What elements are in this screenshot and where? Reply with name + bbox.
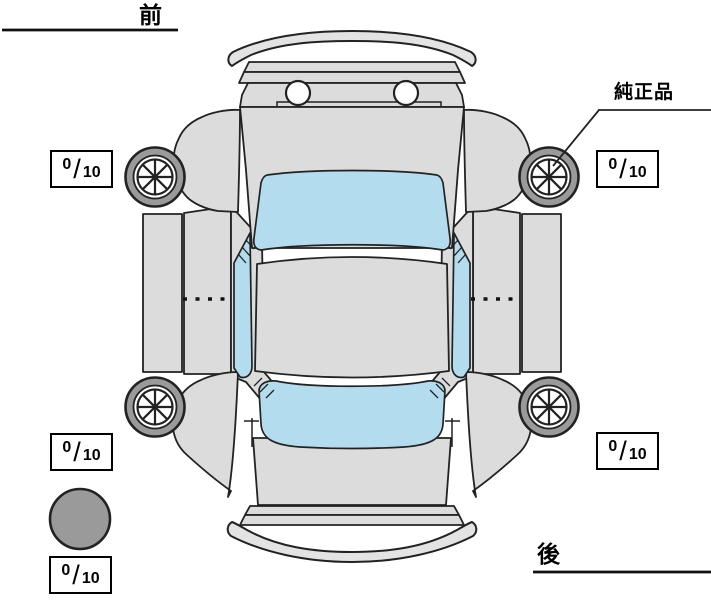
right-headlight-icon xyxy=(394,81,418,105)
rear-right-quarter-panel xyxy=(466,372,531,497)
wheel-front-right xyxy=(520,148,579,207)
tire-score-slash: / xyxy=(619,438,627,465)
tire-score-slash: / xyxy=(619,156,627,183)
front-cowl-upper-strip xyxy=(244,62,460,72)
tire-score-value: 0 xyxy=(608,156,617,174)
left-sill-panel xyxy=(143,214,182,372)
tire-score-value: 0 xyxy=(61,562,70,580)
front-cowl-lower-strip xyxy=(239,72,465,83)
rear-panel-upper-strip xyxy=(245,506,459,515)
front-bumper xyxy=(228,31,475,66)
left-door-panel xyxy=(184,206,231,374)
wheel-spokes xyxy=(533,391,565,423)
rear-left-quarter-panel xyxy=(173,372,238,497)
tire-score-max: 10 xyxy=(83,447,101,465)
tire-score-value: 0 xyxy=(62,439,71,457)
wheel-spokes xyxy=(139,391,171,423)
wheel-rear-right xyxy=(520,378,579,437)
tire-score-spare: 0 / 10 xyxy=(49,556,112,594)
tire-score-value: 0 xyxy=(62,156,71,174)
rear-bumper xyxy=(228,522,477,562)
wheel-spokes xyxy=(533,161,565,193)
tire-score-max: 10 xyxy=(629,446,647,464)
genuine-part-label: 純正品 xyxy=(614,83,674,102)
tire-score-slash: / xyxy=(73,439,81,466)
headlight-panel xyxy=(240,83,464,107)
tire-score-rear-left: 0 / 10 xyxy=(50,433,113,471)
windshield xyxy=(254,171,450,251)
tire-score-max: 10 xyxy=(83,164,101,182)
tire-score-slash: / xyxy=(72,562,80,589)
car-top-view xyxy=(0,0,711,600)
tire-score-max: 10 xyxy=(82,570,100,588)
genuine-leader-line xyxy=(553,110,599,166)
front-right-fender xyxy=(464,110,530,212)
rear-window xyxy=(259,381,445,449)
right-door-panel xyxy=(473,206,520,374)
front-label: 前 xyxy=(139,4,164,27)
roof-panel xyxy=(255,257,449,378)
wheel-rear-left xyxy=(126,378,185,437)
wheel-front-left xyxy=(126,148,185,207)
tire-score-slash: / xyxy=(73,156,81,183)
tire-score-value: 0 xyxy=(608,438,617,456)
wheel-spokes xyxy=(139,161,171,193)
front-left-fender xyxy=(174,110,240,212)
left-headlight-icon xyxy=(286,81,310,105)
tire-score-front-left: 0 / 10 xyxy=(50,150,113,188)
rear-label: 後 xyxy=(537,543,560,566)
tire-score-rear-right: 0 / 10 xyxy=(596,432,659,470)
rear-panel-lower-strip xyxy=(240,515,464,525)
tire-score-max: 10 xyxy=(629,164,647,182)
tire-score-front-right: 0 / 10 xyxy=(596,150,659,188)
right-sill-panel xyxy=(522,214,561,372)
spare-tire-icon xyxy=(50,489,110,549)
vehicle-condition-diagram: 前 後 純正品 0 / 10 0 / 10 0 / 10 0 / 10 0 / … xyxy=(0,0,711,600)
